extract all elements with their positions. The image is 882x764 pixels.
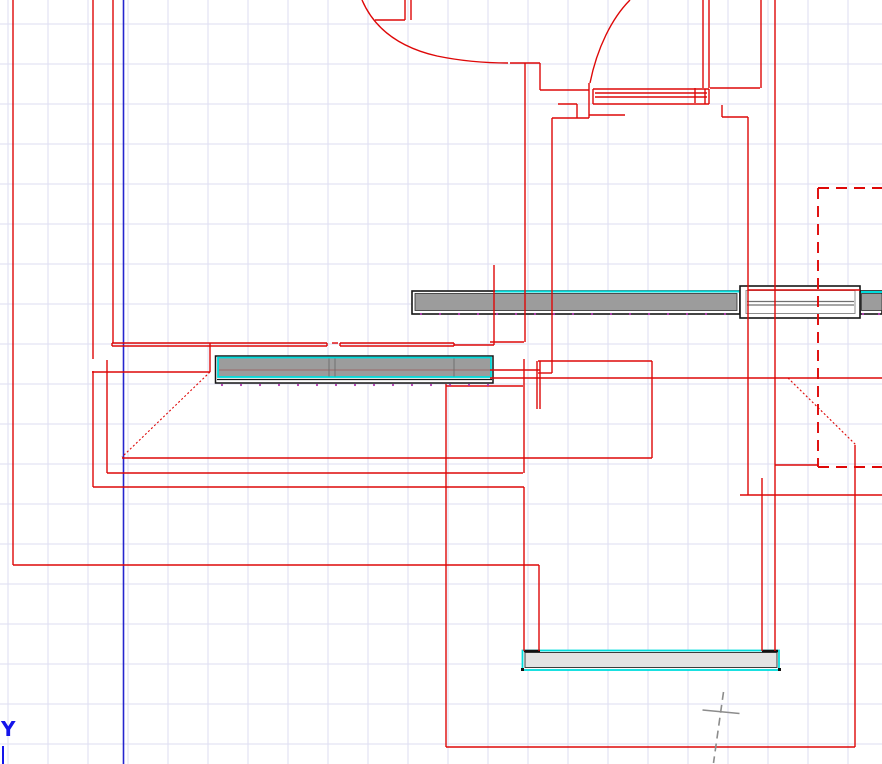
sill-tick-dot bbox=[297, 384, 299, 386]
sill-tick-dot bbox=[686, 313, 688, 315]
wall-dotted-segment bbox=[788, 378, 856, 445]
sill-tick-dot bbox=[487, 384, 489, 386]
sill-tick-dot bbox=[629, 313, 631, 315]
sill-tick-dot bbox=[240, 384, 242, 386]
sill-tick-dot bbox=[221, 384, 223, 386]
sill-tick-dot bbox=[878, 313, 880, 315]
sill-tick-dot bbox=[572, 313, 574, 315]
sill-tick-dot bbox=[667, 313, 669, 315]
marker-layer bbox=[703, 692, 740, 763]
floorplan-svg[interactable]: Y bbox=[0, 0, 882, 764]
bottom-sill-fill bbox=[525, 653, 777, 668]
sill-tick-dot bbox=[648, 313, 650, 315]
sill-tick-dot bbox=[449, 384, 451, 386]
big-window-bar-fill bbox=[415, 294, 737, 311]
sill-tick-dot bbox=[862, 313, 864, 315]
sill-tick-dot bbox=[477, 313, 479, 315]
sill-tick-dot bbox=[496, 313, 498, 315]
bottom-sill-corner bbox=[778, 668, 781, 671]
sill-tick-dot bbox=[468, 384, 470, 386]
sill-tick-dot bbox=[420, 313, 422, 315]
cad-viewport[interactable]: Y bbox=[0, 0, 882, 764]
sill-tick-dot bbox=[515, 313, 517, 315]
sill-tick-dot bbox=[610, 313, 612, 315]
left-window-bar-fill bbox=[218, 358, 491, 378]
sill-tick-dot bbox=[591, 313, 593, 315]
wall-dotted-segment bbox=[122, 372, 210, 457]
sill-tick-dot bbox=[278, 384, 280, 386]
sill-tick-dot bbox=[316, 384, 318, 386]
bottom-sill-corner bbox=[521, 668, 524, 671]
sill-tick-dot bbox=[335, 384, 337, 386]
axis-layer bbox=[3, 0, 124, 764]
sill-tick-dot bbox=[430, 384, 432, 386]
sill-tick-dot bbox=[392, 384, 394, 386]
sill-tick-dot bbox=[705, 313, 707, 315]
sill-tick-dot bbox=[439, 313, 441, 315]
sill-tick-dot bbox=[458, 313, 460, 315]
sill-tick-dot bbox=[411, 384, 413, 386]
sill-tick-dot bbox=[724, 313, 726, 315]
survey-cross-line bbox=[714, 692, 724, 763]
sill-tick-dot bbox=[534, 313, 536, 315]
door-swing-arc bbox=[362, 0, 508, 63]
door-swing-arc bbox=[590, 0, 630, 83]
sill-tick-dot bbox=[553, 313, 555, 315]
sill-tick-dot bbox=[259, 384, 261, 386]
y-axis-label: Y bbox=[0, 717, 16, 741]
right-window-bar-fill bbox=[862, 294, 882, 311]
sill-tick-dot bbox=[354, 384, 356, 386]
sill-tick-dot bbox=[373, 384, 375, 386]
